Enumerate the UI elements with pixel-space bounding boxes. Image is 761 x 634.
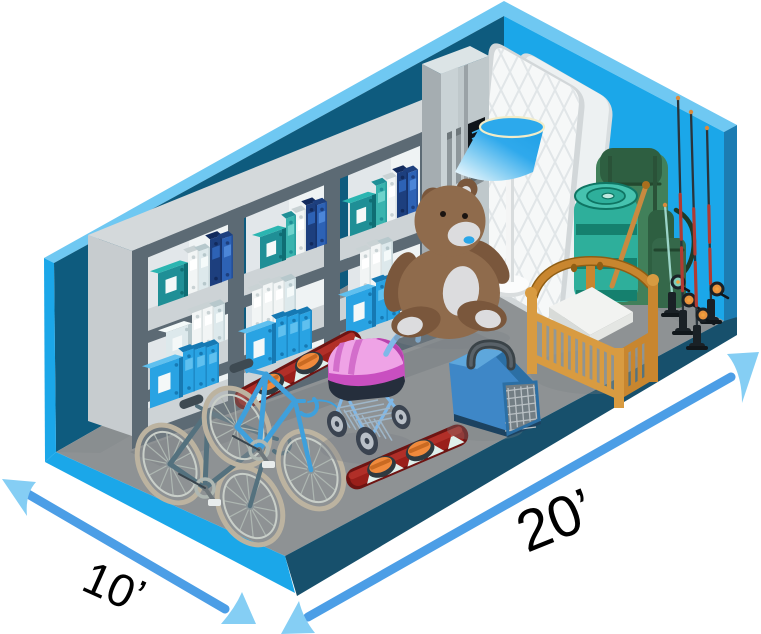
svg-text:20’: 20’ (508, 476, 604, 565)
